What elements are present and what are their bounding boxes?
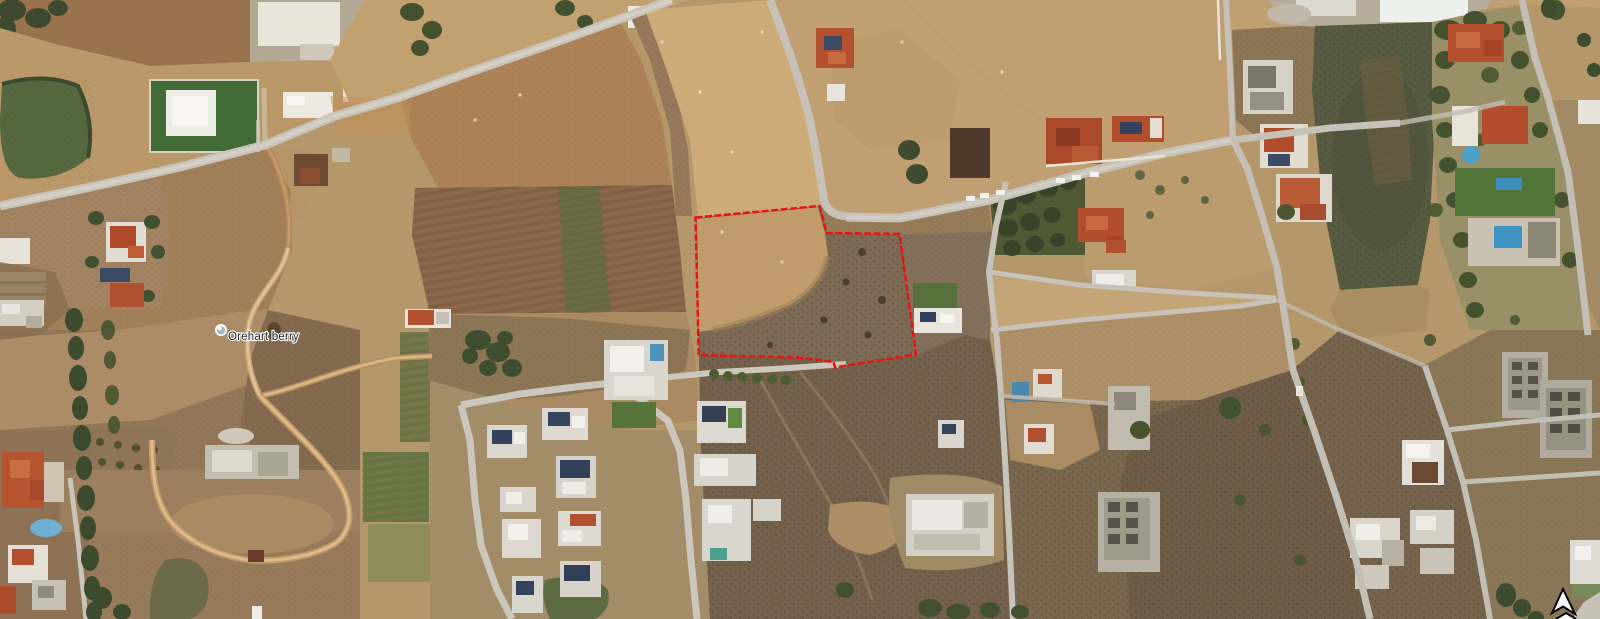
svg-text:Orehart berry: Orehart berry bbox=[228, 331, 299, 343]
